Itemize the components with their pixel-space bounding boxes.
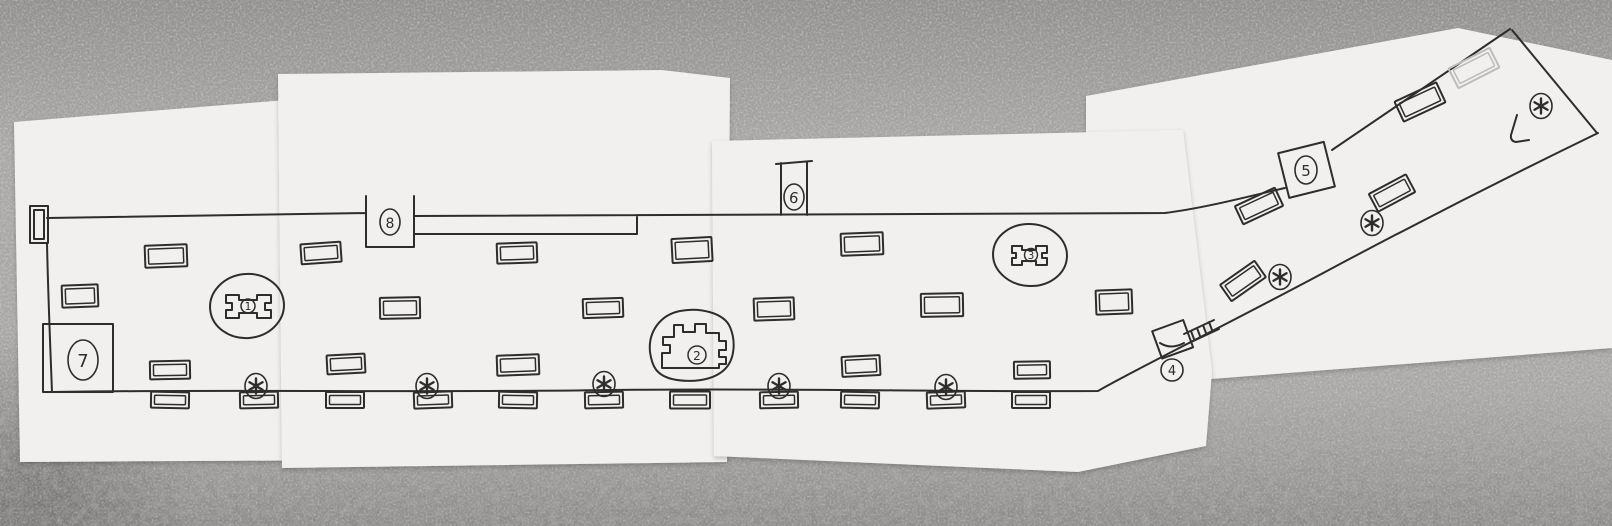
marker-8-label: 8 [386, 216, 395, 232]
photo-hand-drawn-floor-plan: 1 2 3 4 5 6 7 8 [0, 0, 1612, 526]
marker-2-label: 2 [693, 349, 701, 363]
marker-1-label: 1 [245, 300, 252, 313]
marker-7-label: 7 [77, 351, 88, 372]
marker-4-label: 4 [1168, 364, 1176, 379]
marker-3-label: 3 [1028, 250, 1035, 262]
marker-5-label: 5 [1301, 162, 1311, 180]
